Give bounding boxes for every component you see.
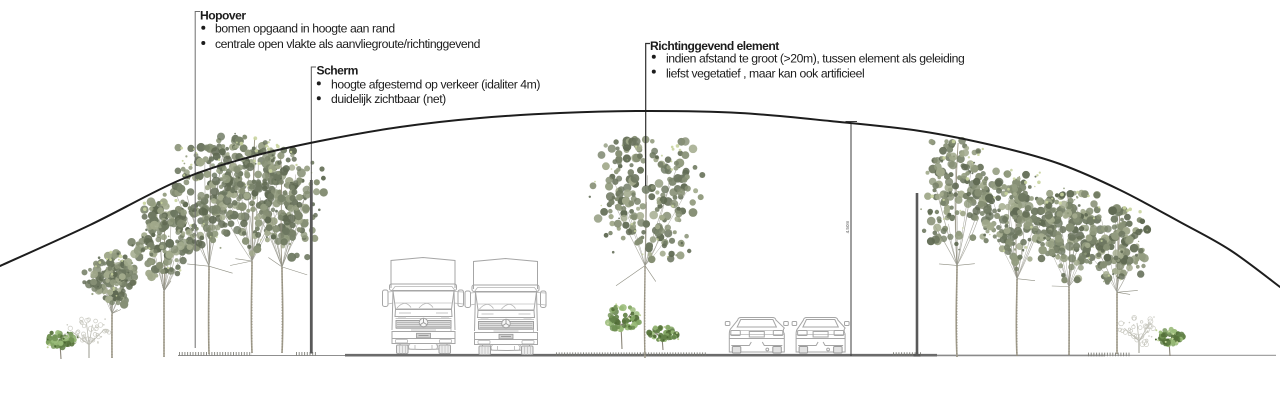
svg-text:hoogte afgestemd op verkeer (i: hoogte afgestemd op verkeer (idaliter 4m… (331, 77, 540, 91)
svg-text:indien afstand te groot (>20m): indien afstand te groot (>20m), tussen e… (666, 52, 964, 66)
svg-text:Hopover: Hopover (200, 9, 246, 23)
svg-text:centrale open vlakte als aanvl: centrale open vlakte als aanvliegroute/r… (215, 37, 480, 51)
svg-text:Scherm: Scherm (317, 64, 358, 78)
svg-text:duidelijk zichtbaar (net): duidelijk zichtbaar (net) (331, 92, 446, 106)
svg-text:liefst vegetatief , maar kan o: liefst vegetatief , maar kan ook artific… (666, 66, 864, 80)
svg-text:4.50m: 4.50m (845, 220, 850, 233)
svg-text:bomen opgaand in hoogte aan ra: bomen opgaand in hoogte aan rand (215, 22, 395, 36)
